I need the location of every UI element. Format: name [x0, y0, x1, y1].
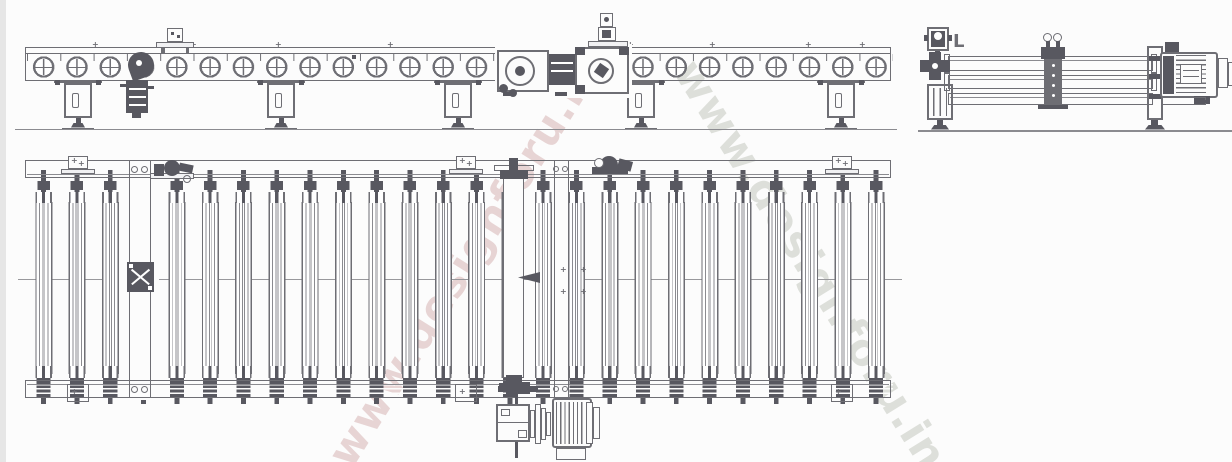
tension-station-right: [592, 156, 632, 186]
block-dot: [129, 264, 133, 268]
label-box-hole: [934, 32, 942, 40]
bracket-mark: +: [835, 388, 842, 396]
tensioner-pin-left: [120, 84, 126, 87]
motor-stripe: [551, 62, 573, 64]
ground-line-right: [918, 130, 1232, 132]
plan-motor-cap: [593, 407, 600, 439]
output-shaft: [1162, 97, 1206, 105]
column-hole: [1052, 84, 1055, 87]
rail-tick: +: [92, 41, 99, 49]
column-hole: [1052, 94, 1055, 97]
station-block: [154, 164, 164, 176]
hanger-rung: [129, 96, 146, 98]
bolt-hole: [553, 166, 559, 172]
side-drive-assembly: [495, 44, 632, 98]
label-box-tab-right: [948, 35, 952, 41]
rail-bracket-top: + +: [449, 156, 483, 175]
nameplate-line: [1183, 76, 1199, 77]
section-label: L: [953, 31, 964, 52]
case-corner: [575, 85, 585, 94]
leg-bolt-left: [435, 80, 440, 85]
bracket-mark: +: [466, 160, 473, 168]
side-roller-circles-row: [27, 54, 893, 80]
leg-bolt-right: [299, 80, 304, 85]
case-corner: [619, 47, 629, 55]
station-gear: [164, 160, 180, 176]
leg-handle: [275, 93, 282, 108]
nameplate-line: [1183, 70, 1199, 71]
rail-bracket-bottom: +: [455, 384, 477, 402]
plan-motor-endplate: [586, 402, 593, 444]
bracket-flange: [825, 169, 859, 174]
junction-box: [556, 448, 586, 460]
station-eye: [594, 158, 604, 168]
column-hole: [1052, 64, 1055, 67]
gearbox-line: [498, 422, 528, 423]
bearing-center: [932, 63, 938, 69]
rail-bolt-mark: [352, 55, 356, 59]
block-dot: [148, 286, 152, 290]
rail-tick: +: [387, 41, 394, 49]
tensioner-pivot: [136, 60, 142, 66]
clamp-box: [167, 28, 183, 42]
gearbox-detail: [518, 430, 527, 438]
drive-roller-wings: [500, 170, 528, 179]
bracket-mark: +: [71, 388, 78, 396]
bracket-mark: +: [459, 388, 466, 396]
ground-line-left: [15, 129, 897, 130]
tensioner-pin-right: [148, 86, 154, 89]
leg-handle: [835, 93, 842, 108]
leg-handle: [452, 93, 459, 108]
leg-bolt-right: [96, 80, 101, 85]
cad-drawing-canvas: www.designforu.in www.designforu.in: [0, 0, 1232, 462]
left-support-block: [927, 84, 953, 120]
plan-gearmotor: [494, 382, 604, 462]
pedestal-flange: [588, 41, 628, 47]
leg-handle: [635, 93, 642, 108]
rail-tick: +: [859, 41, 866, 49]
leg-bolt-right: [659, 80, 664, 85]
plan-tensioner-block: [127, 262, 154, 292]
datum-mark: +: [560, 266, 567, 274]
bracket-mark: +: [71, 157, 78, 165]
shaft-tip: [1205, 100, 1210, 103]
drive-roller-stem: [509, 158, 518, 171]
tension-station-left: [150, 158, 197, 185]
pedestal-core: [602, 30, 611, 38]
motor-nameplate: [1180, 64, 1202, 84]
clamp-bolt: [161, 48, 165, 54]
bolt-hole: [131, 386, 138, 393]
motor-mount-wings: [498, 386, 538, 392]
bracket-mark: +: [78, 160, 85, 168]
rail-tick: +: [275, 41, 282, 49]
rail-bracket-top: + +: [825, 156, 859, 175]
bearing-label-box: [927, 27, 949, 51]
rail-bracket-bottom: +: [67, 384, 89, 402]
motor-fan-cover: [1228, 62, 1232, 86]
leg-bolt-left: [258, 80, 263, 85]
support-leg: [257, 81, 305, 129]
top-pedestal: [586, 13, 630, 48]
top-clamp-bracket: [156, 28, 194, 54]
rail-bracket-top: + +: [61, 156, 95, 175]
support-leg: [817, 81, 865, 129]
page-edge-shadow: [0, 0, 6, 462]
pedestal-cap-dot: [604, 17, 609, 22]
datum-mark: +: [560, 288, 567, 296]
leg-bolt-left: [818, 80, 823, 85]
leg-bolt-left: [55, 80, 60, 85]
right-foot: [1145, 125, 1165, 130]
motor-end-bell: [1218, 58, 1228, 88]
bracket-flange: [449, 169, 483, 174]
clamp-dot: [171, 32, 174, 35]
support-leg: [54, 81, 102, 129]
clamp-dot: [177, 35, 180, 38]
rail-tick: +: [805, 41, 812, 49]
motor-gear-block: [1163, 56, 1174, 94]
support-block-lines: [933, 88, 947, 116]
plan-motor-fins: [556, 402, 585, 444]
gearbox-detail: [501, 409, 510, 416]
column-hole: [1052, 74, 1055, 77]
label-box-tab-left: [924, 35, 928, 41]
station-eye: [183, 175, 191, 183]
bracket-mark: +: [842, 160, 849, 168]
hanger-rung: [129, 104, 146, 106]
bolt-hole: [562, 166, 568, 172]
motor-stripe: [551, 70, 573, 72]
bolt-hole: [141, 386, 148, 393]
bracket-mark: +: [459, 157, 466, 165]
stand-base: [1038, 105, 1068, 109]
joint-line: [568, 160, 569, 398]
support-leg: [434, 81, 482, 129]
joint-line: [554, 160, 555, 398]
hanger-rung: [129, 88, 146, 90]
bolt-hole: [141, 166, 148, 173]
clamp-bolt: [186, 48, 190, 54]
datum-mark: +: [580, 266, 587, 274]
rail-tick: +: [709, 41, 716, 49]
drive-lug: [503, 92, 513, 96]
coupling-ring: [546, 412, 551, 436]
left-foot: [931, 125, 949, 130]
sprocket-hub: [515, 66, 525, 76]
drive-lug: [555, 92, 567, 96]
rail-bracket-bottom: +: [831, 384, 853, 402]
leg-handle: [72, 93, 79, 108]
leg-bolt-right: [476, 80, 481, 85]
bracket-flange: [61, 169, 95, 174]
station-arm: [178, 163, 193, 174]
chain-tensioner: [120, 50, 156, 120]
stand-clamp: [1041, 47, 1065, 59]
bolt-hole: [131, 166, 138, 173]
leg-bolt-right: [859, 80, 864, 85]
tensioner-tip: [132, 113, 141, 118]
case-corner: [575, 47, 585, 55]
datum-mark: +: [580, 288, 587, 296]
bracket-mark: +: [835, 157, 842, 165]
